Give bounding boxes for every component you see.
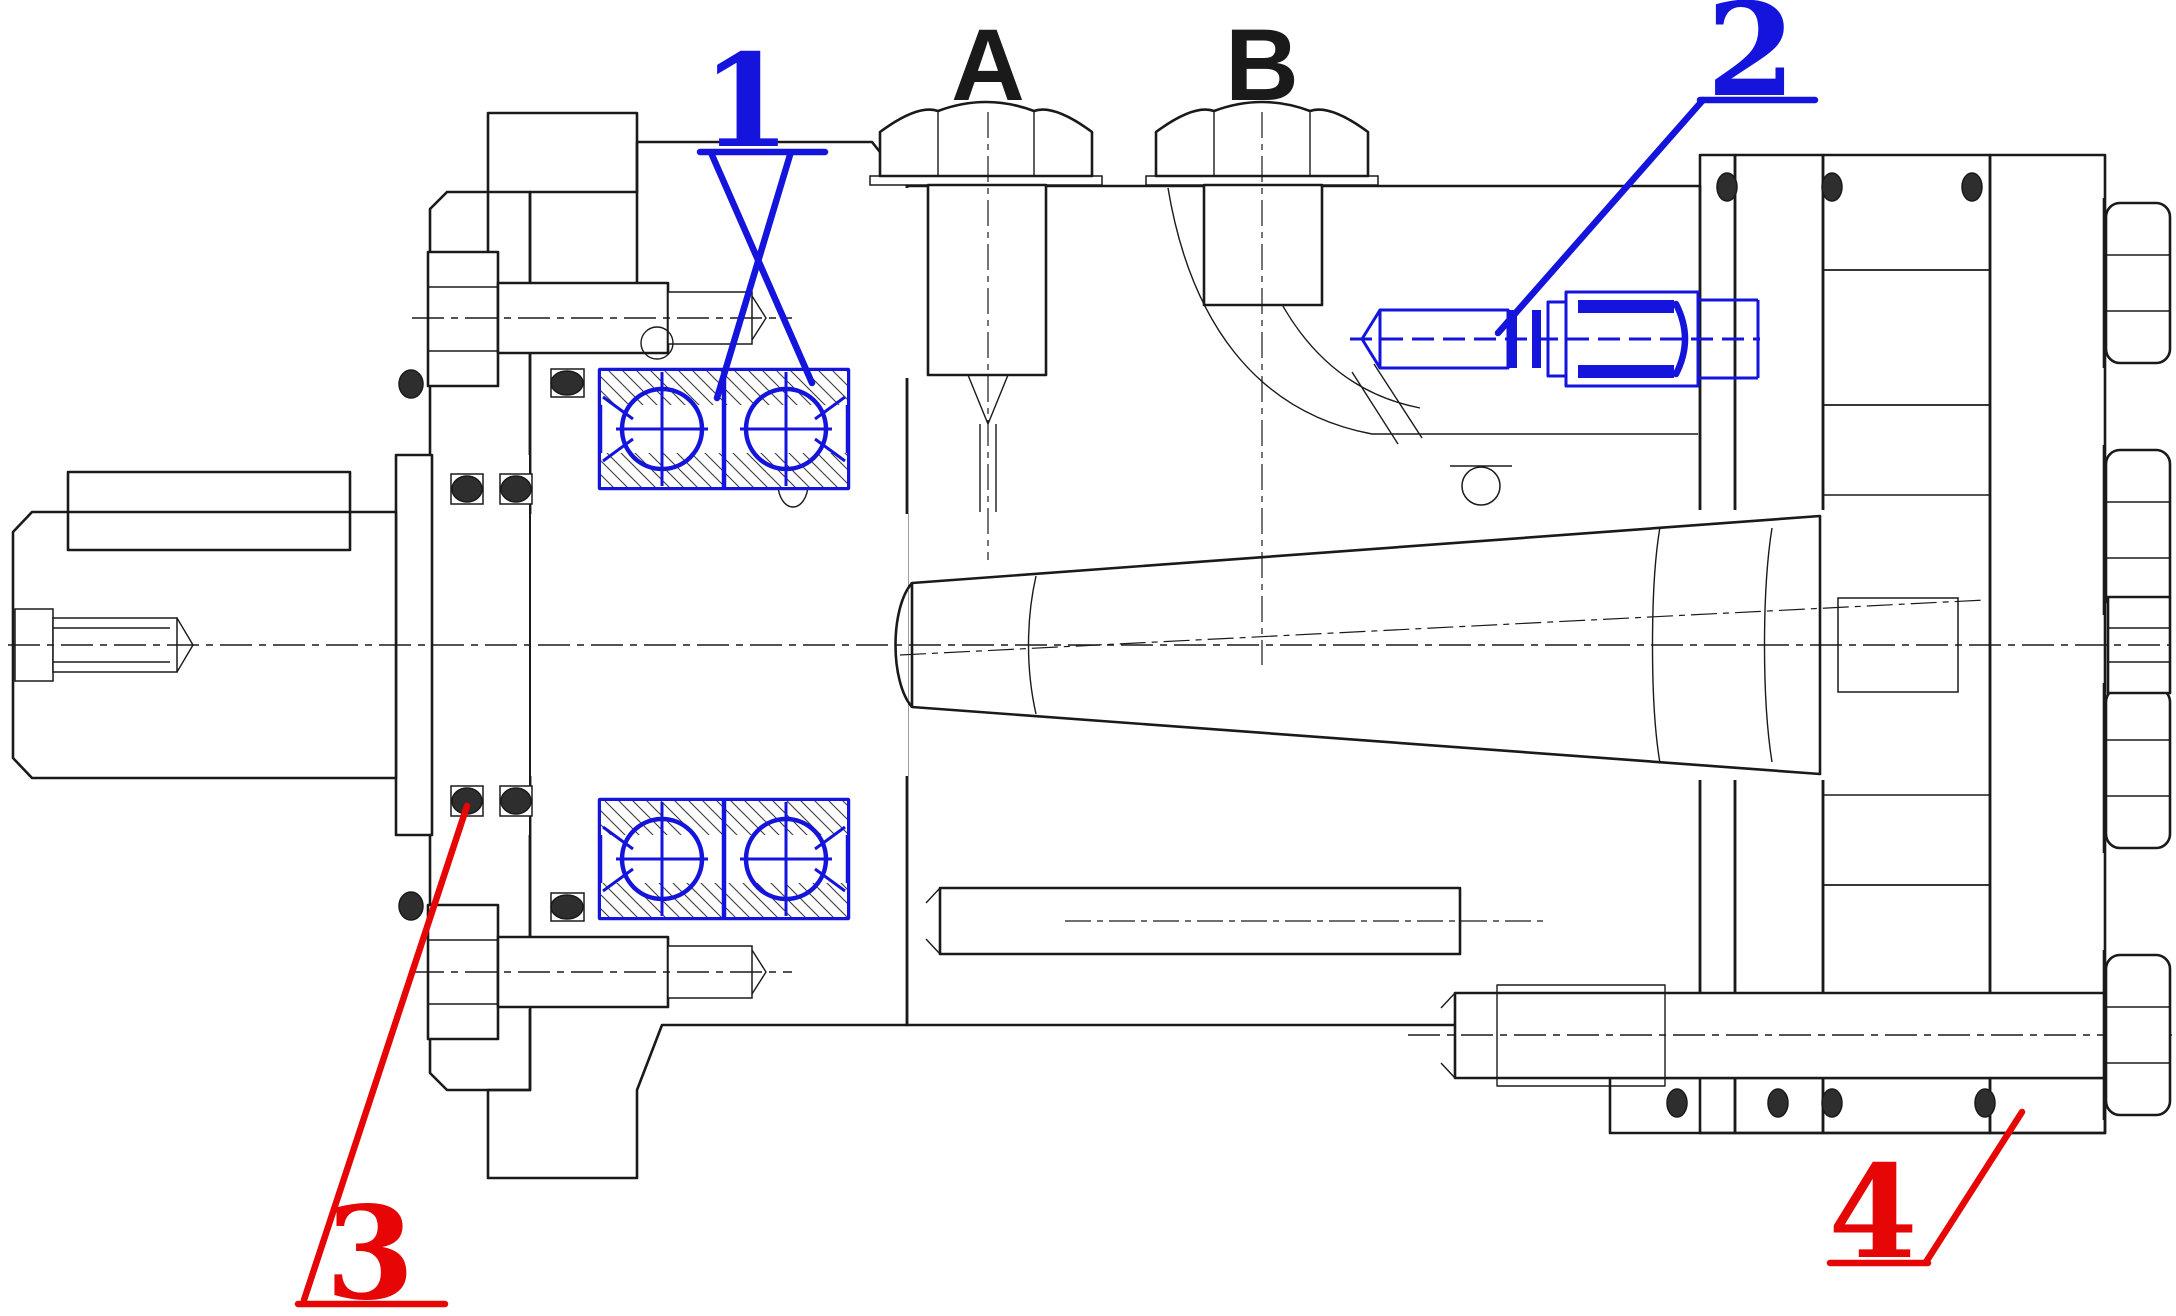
callout-3-label: 3 xyxy=(325,1179,414,1316)
end-cover-seal-item4 xyxy=(1975,1089,1995,1117)
engineering-drawing: 1 2 3 4 A B xyxy=(0,0,2176,1316)
callout-3: 3 xyxy=(298,806,467,1316)
top-boss xyxy=(488,113,637,285)
callout-4: 4 xyxy=(1828,1112,2022,1288)
drawing-canvas: 1 2 3 4 A B xyxy=(0,0,2176,1316)
check-ball xyxy=(1462,467,1500,505)
rotor-section-top xyxy=(1823,270,1990,405)
bearing-assembly-bottom xyxy=(600,800,848,918)
callout-1-label: 1 xyxy=(701,27,790,177)
end-cover-bolts xyxy=(2104,198,2170,1120)
callout-4-label: 4 xyxy=(1828,1138,1917,1288)
callout-2-label: 2 xyxy=(1706,0,1795,126)
port-b-label: B xyxy=(1225,8,1299,122)
bearing-assembly-top xyxy=(600,370,848,488)
end-cover xyxy=(1990,155,2105,1133)
through-bolt-bottom xyxy=(1408,985,2172,1086)
port-a-label: A xyxy=(951,8,1025,122)
